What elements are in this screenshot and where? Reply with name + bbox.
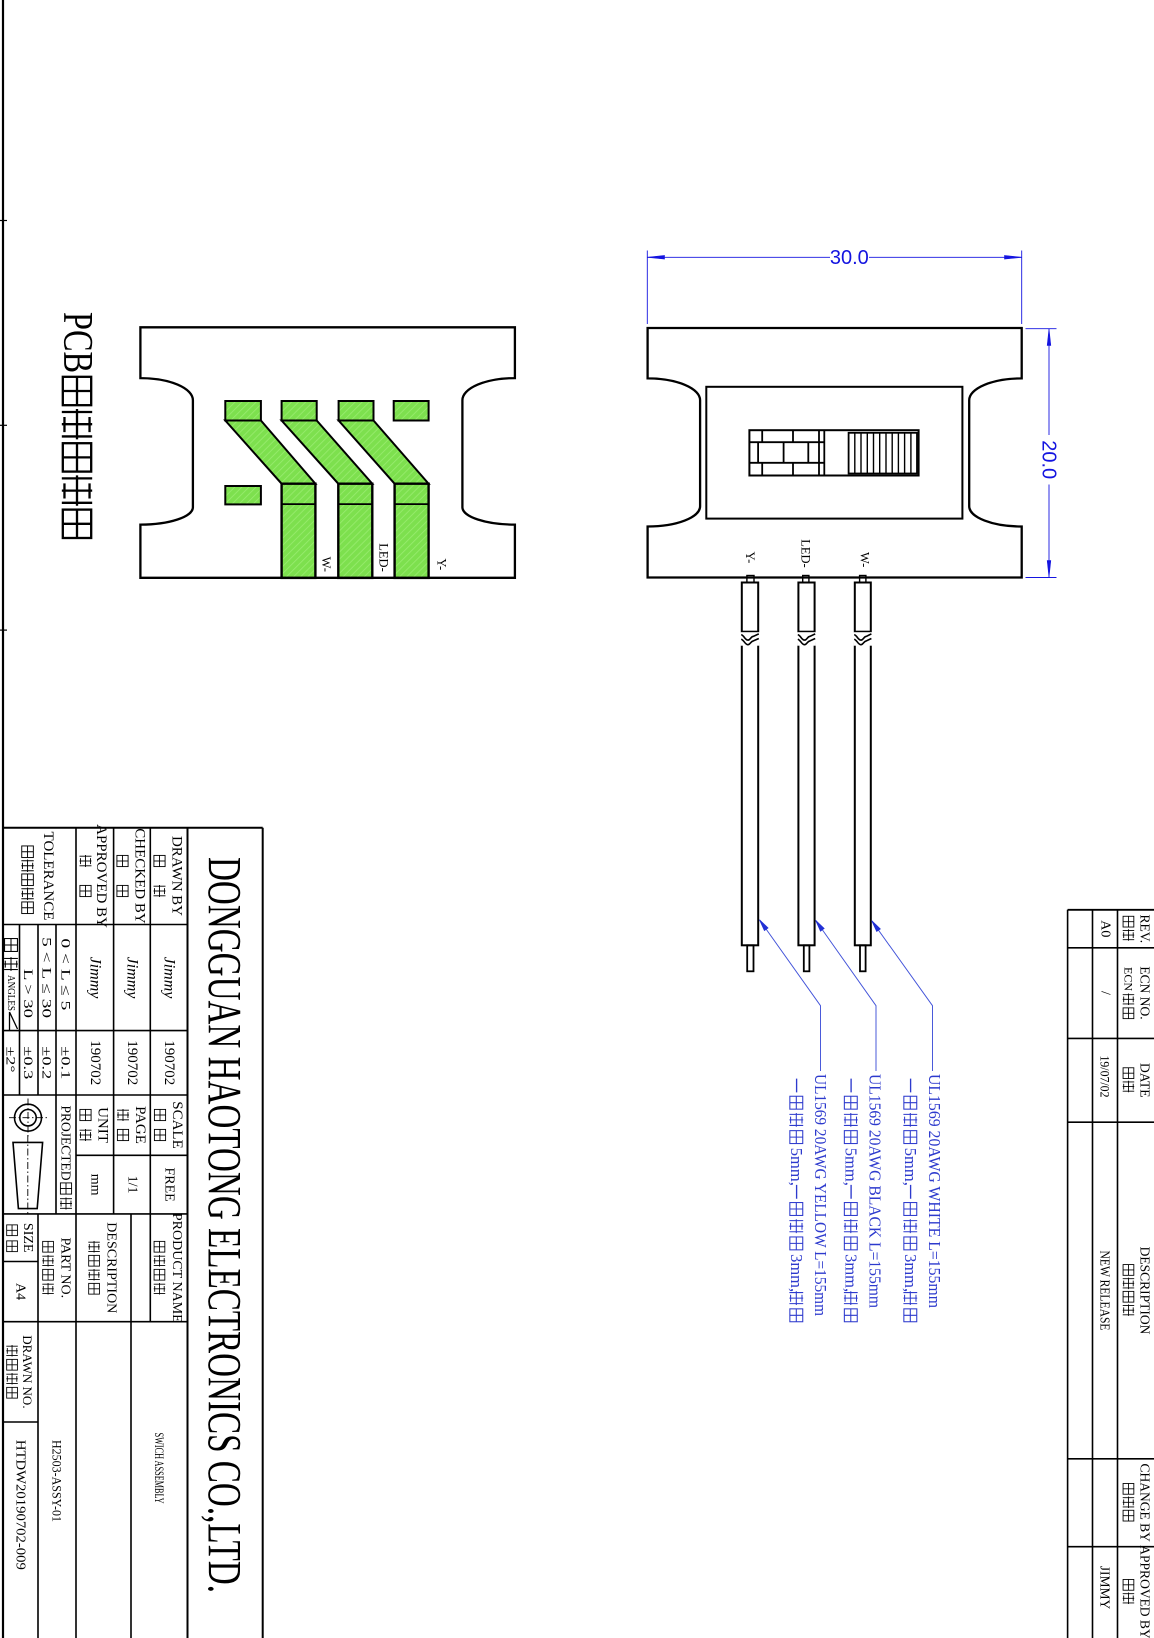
svg-text:A4: A4 [13,1283,28,1300]
svg-text:SCALE: SCALE [169,1101,185,1149]
svg-text:DRAWN BY: DRAWN BY [169,836,185,916]
svg-text:REV.: REV. [1138,914,1153,943]
svg-text:CHECKED BY: CHECKED BY [132,828,148,924]
svg-text:NEW RELEASE: NEW RELEASE [1098,1251,1113,1331]
svg-text:/: / [1098,991,1113,995]
svg-text:190702: 190702 [124,1040,140,1085]
svg-text:DONGGUAN HAOTONG ELECTRONICS C: DONGGUAN HAOTONG ELECTRONICS CO.,LTD. [198,857,251,1593]
svg-text:ANGLES: ANGLES [5,975,17,1011]
svg-text:APPROVED BY: APPROVED BY [1138,1545,1153,1638]
svg-text:0 < L ≤ 5: 0 < L ≤ 5 [59,938,74,1010]
svg-text:CHANGE BY: CHANGE BY [1138,1464,1153,1543]
svg-text:1/1: 1/1 [125,1176,140,1194]
svg-text:UL1569 20AWG BLACK L=155mm: UL1569 20AWG BLACK L=155mm [866,1074,885,1308]
svg-text:mm: mm [87,1174,102,1196]
svg-text:30.0: 30.0 [830,247,869,269]
svg-text:3mm,: 3mm, [841,1254,860,1292]
svg-text:APPROVED BY: APPROVED BY [93,824,109,928]
svg-text:UL1569 20AWG WHITE L=155mm: UL1569 20AWG WHITE L=155mm [925,1074,944,1308]
svg-text:±0.3: ±0.3 [21,1046,36,1079]
svg-text:H2503-ASSY-01: H2503-ASSY-01 [50,1440,65,1522]
svg-text:LED-: LED- [377,543,391,571]
svg-text:±0.2: ±0.2 [40,1046,55,1079]
svg-text:5mm,: 5mm, [841,1148,860,1186]
svg-text:L > 30: L > 30 [21,969,36,1018]
svg-text:±0.1: ±0.1 [59,1046,74,1079]
svg-text:FREE: FREE [162,1167,177,1201]
svg-text:DRAWN NO.: DRAWN NO. [20,1335,35,1408]
svg-text:SWICH ASSEMBLY: SWICH ASSEMBLY [152,1433,166,1504]
svg-text:5mm,: 5mm, [901,1148,920,1186]
svg-text:Jimmy: Jimmy [161,957,178,1000]
svg-text:19/07/02: 19/07/02 [1098,1056,1113,1098]
svg-text:20.0: 20.0 [1037,440,1059,479]
svg-text:ECN NO.: ECN NO. [1138,966,1153,1019]
svg-text:UL1569 20AWG YELLOW L=155mm: UL1569 20AWG YELLOW L=155mm [811,1074,830,1316]
svg-text:3mm,: 3mm, [787,1254,806,1292]
svg-text:DESCRIPTION: DESCRIPTION [1138,1247,1153,1335]
svg-text:W-: W- [857,552,871,567]
svg-text:PART NO.: PART NO. [58,1237,73,1298]
svg-text:SIZE: SIZE [20,1223,35,1253]
svg-text:PCB: PCB [54,312,100,373]
svg-text:W-: W- [319,557,333,572]
svg-text:±2°: ±2° [4,1047,19,1073]
svg-text:DATE: DATE [1138,1063,1153,1098]
svg-text:190702: 190702 [161,1040,177,1085]
svg-text:Jimmy: Jimmy [86,957,103,1000]
svg-text:PROJECTED: PROJECTED [59,1105,74,1180]
svg-text:3mm,: 3mm, [901,1254,920,1292]
svg-text:5 < L ≤ 30: 5 < L ≤ 30 [40,937,55,1018]
svg-text:190702: 190702 [87,1040,103,1085]
svg-text:JIMMY: JIMMY [1098,1566,1113,1610]
svg-text:ECN: ECN [1122,967,1136,991]
svg-text:UNIT: UNIT [95,1107,111,1143]
svg-text:PRODUCT NAME: PRODUCT NAME [169,1213,184,1323]
svg-text:PAGE: PAGE [132,1106,148,1144]
svg-text:HTDW20190702-009: HTDW20190702-009 [12,1440,27,1570]
svg-text:5mm,: 5mm, [787,1148,806,1186]
svg-text:Jimmy: Jimmy [124,957,141,1000]
svg-text:Y-: Y- [434,558,448,570]
svg-text:A0: A0 [1098,920,1113,937]
svg-text:Y-: Y- [743,551,757,563]
svg-text:DESCRIPTION: DESCRIPTION [104,1222,119,1313]
svg-text:LED-: LED- [798,539,812,567]
svg-text:TOLERANCE: TOLERANCE [40,832,56,921]
